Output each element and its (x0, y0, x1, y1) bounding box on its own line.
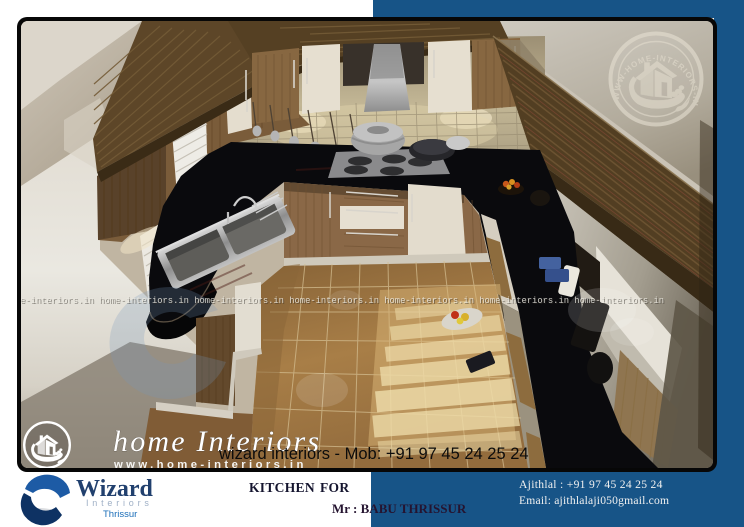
svg-text:wizard interiors - Mob: +91 97: wizard interiors - Mob: +91 97 45 24 25 … (218, 445, 529, 463)
svg-text:FOR: FOR (320, 480, 349, 495)
svg-text:e-interiors.in home-interior: e-interiors.in home-interiors.in home-in… (20, 296, 664, 306)
svg-text:Mr : BABU THRISSUR: Mr : BABU THRISSUR (332, 501, 467, 516)
svg-text:Thrissur: Thrissur (103, 509, 137, 520)
svg-text:Email: ajithlalaji050gmail.com: Email: ajithlalaji050gmail.com (519, 494, 669, 507)
svg-text:KITCHEN: KITCHEN (249, 480, 315, 495)
svg-text:Ajithlal : +91 97 45 24 25 24: Ajithlal : +91 97 45 24 25 24 (519, 478, 663, 491)
svg-text:Interiors: Interiors (86, 498, 153, 508)
